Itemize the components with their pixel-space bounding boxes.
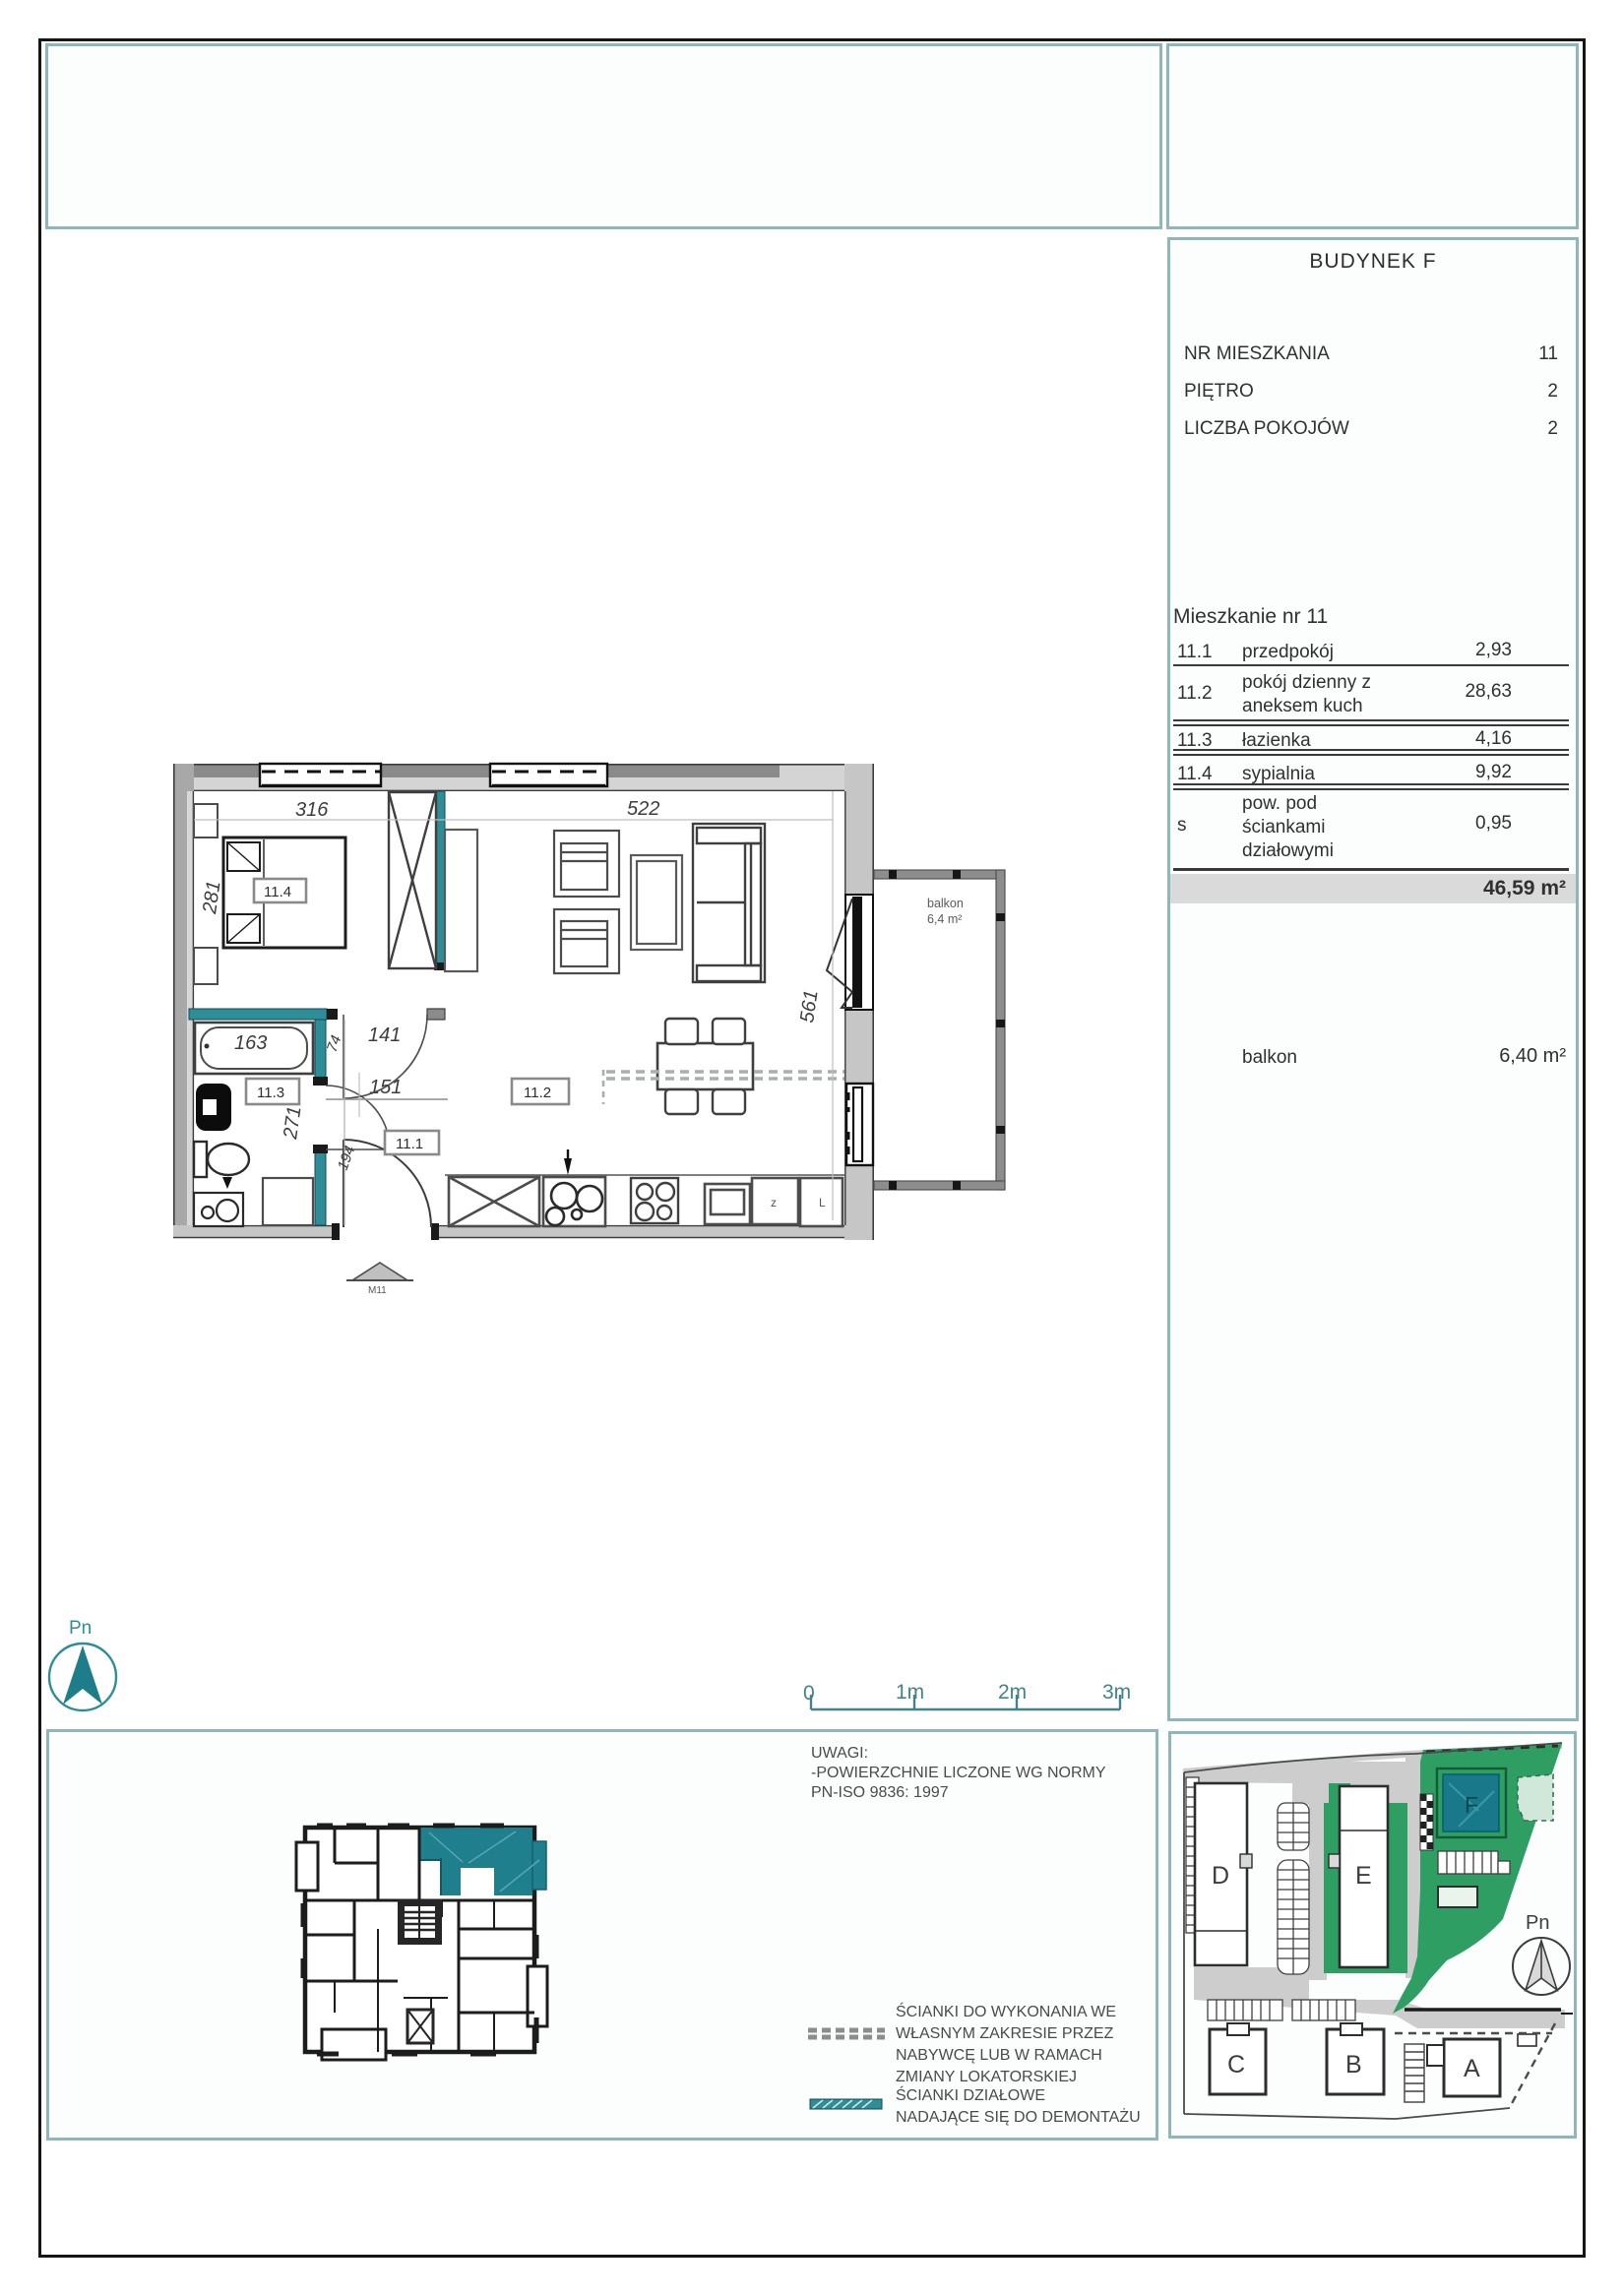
svg-text:A: A [1464,2055,1480,2082]
svg-text:F: F [1465,1792,1478,1818]
svg-text:0: 0 [803,1682,815,1705]
svg-text:L: L [819,1196,826,1210]
svg-text:316: 316 [295,799,329,821]
svg-text:11.2: 11.2 [524,1085,551,1101]
svg-text:3m: 3m [1102,1681,1131,1704]
svg-text:6,4 m²: 6,4 m² [927,912,962,926]
svg-text:561: 561 [796,989,822,1024]
svg-text:151: 151 [369,1077,402,1098]
svg-text:11.3: 11.3 [257,1085,284,1101]
svg-text:B: B [1345,2051,1362,2079]
svg-text:11.4: 11.4 [264,884,291,900]
svg-text:z: z [771,1196,777,1210]
svg-text:194: 194 [335,1144,359,1172]
svg-text:141: 141 [368,1024,401,1046]
svg-text:Pn: Pn [1526,1912,1549,1934]
svg-text:M11: M11 [368,1285,387,1296]
svg-text:11.1: 11.1 [396,1136,423,1152]
svg-text:Pn: Pn [69,1618,92,1639]
svg-text:281: 281 [199,880,225,916]
svg-text:C: C [1227,2051,1245,2079]
svg-text:1m: 1m [896,1681,924,1704]
svg-text:balkon: balkon [927,897,964,910]
svg-text:D: D [1212,1862,1229,1890]
svg-text:522: 522 [627,798,659,820]
svg-text:271: 271 [280,1105,306,1142]
svg-text:74: 74 [324,1033,345,1054]
svg-text:163: 163 [234,1032,267,1054]
svg-text:2m: 2m [998,1681,1027,1704]
svg-text:E: E [1355,1862,1372,1890]
